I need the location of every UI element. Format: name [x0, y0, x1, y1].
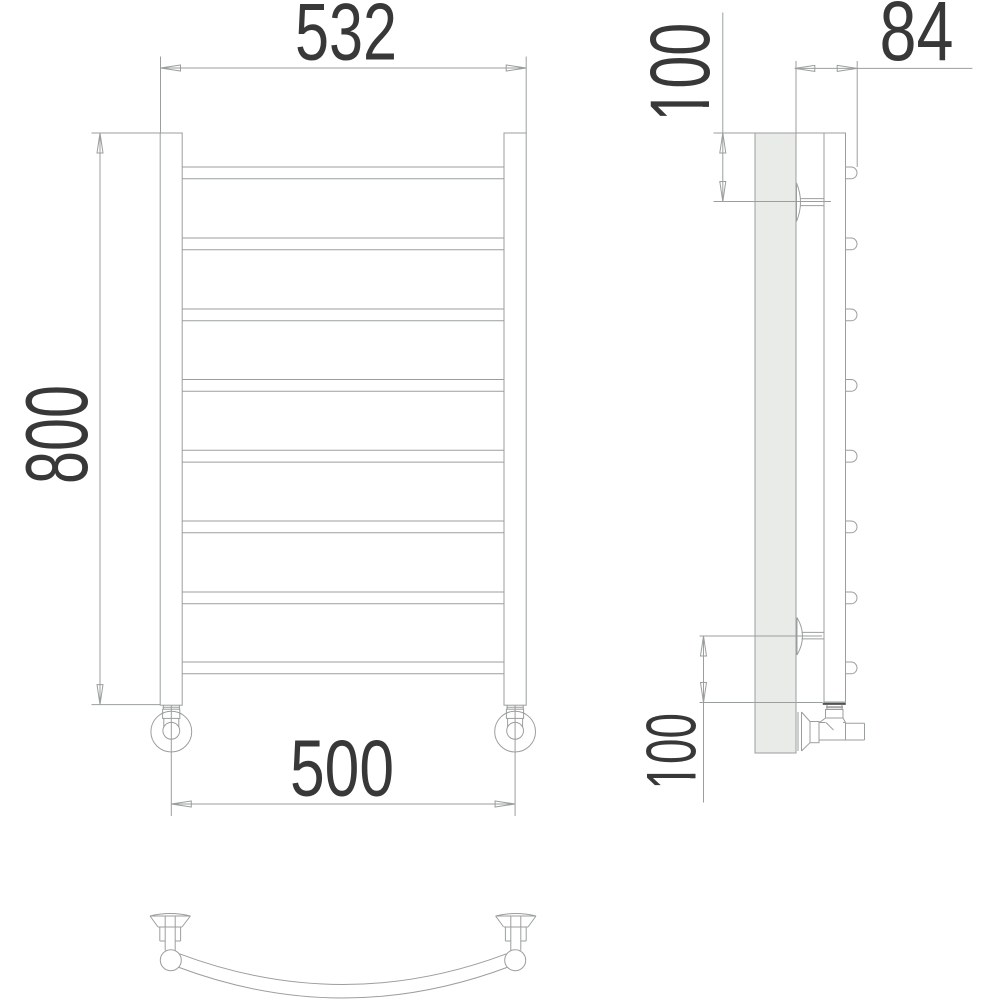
svg-text:84: 84: [880, 0, 954, 78]
svg-text:500: 500: [290, 724, 394, 813]
svg-text:532: 532: [295, 0, 397, 78]
svg-text:100: 100: [632, 713, 711, 789]
svg-text:100: 100: [634, 23, 728, 122]
svg-text:800: 800: [7, 385, 106, 484]
